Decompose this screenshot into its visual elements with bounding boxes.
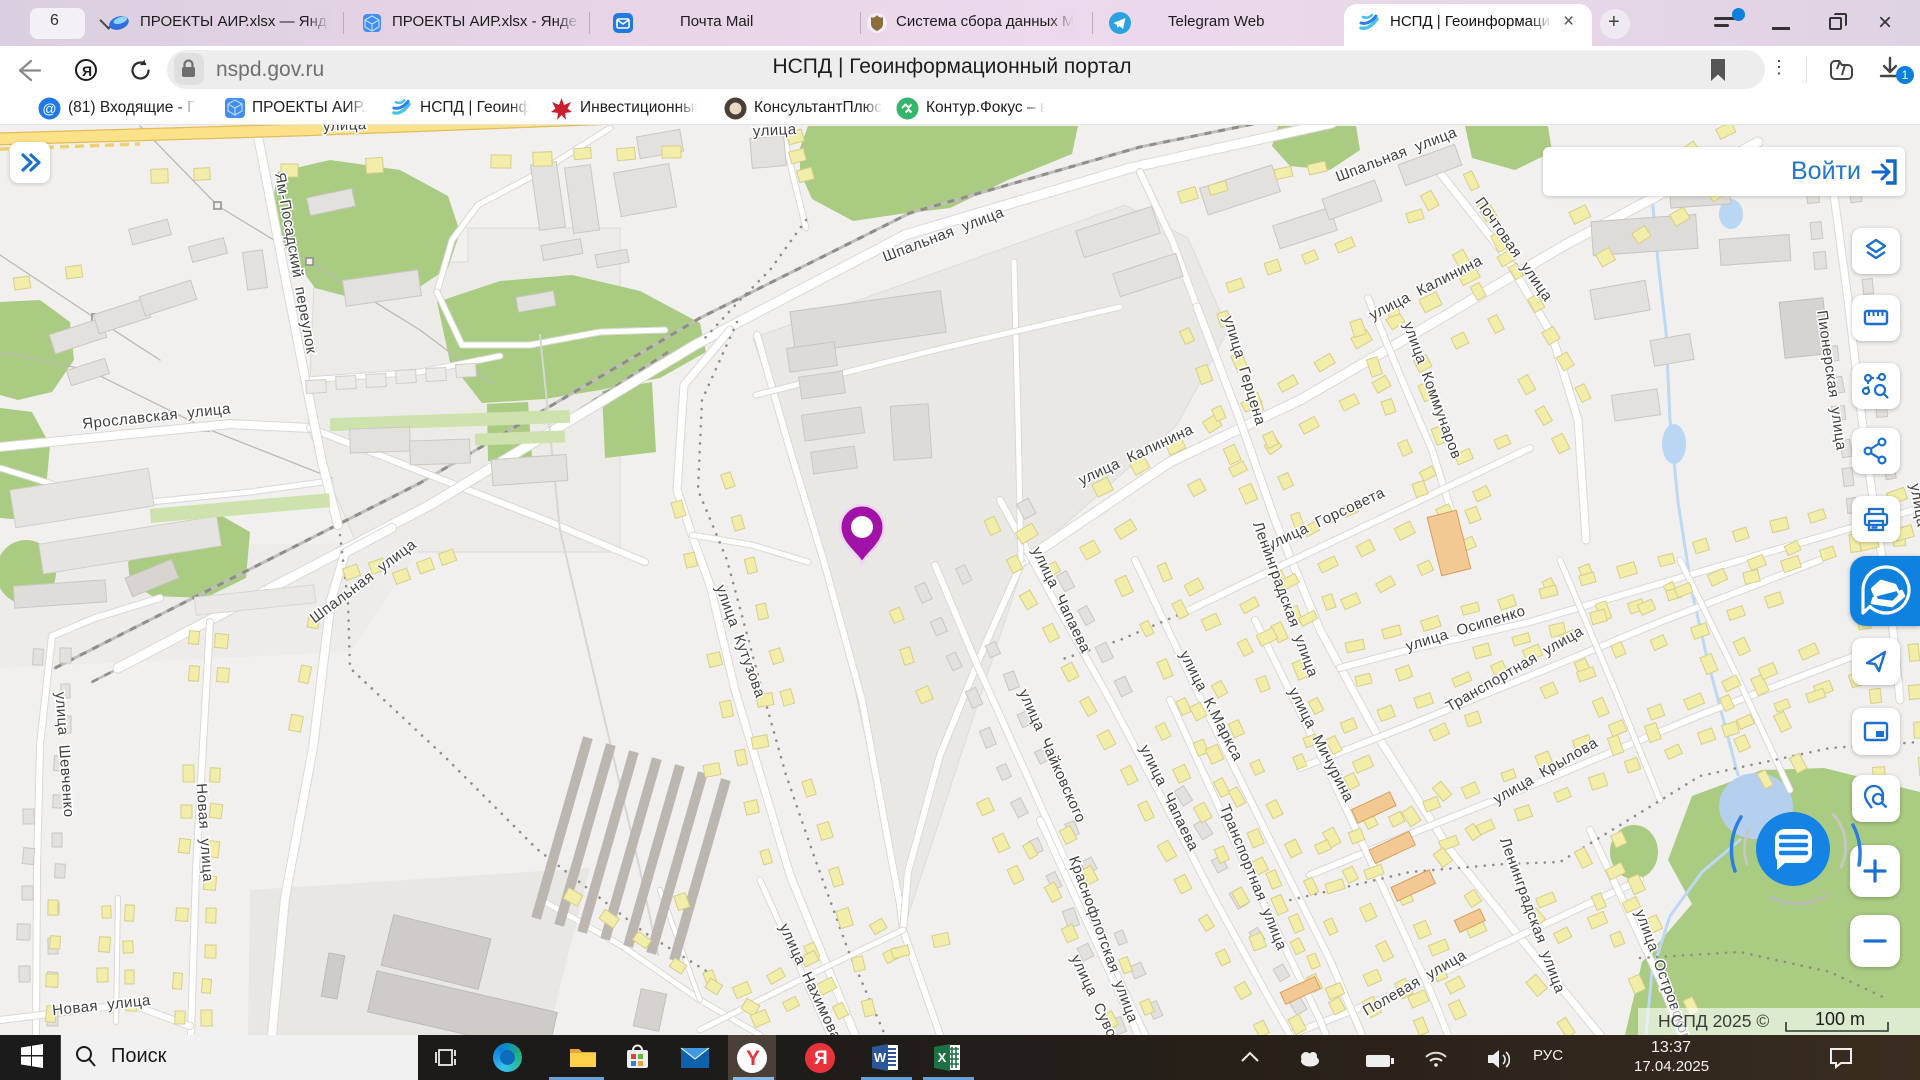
svg-text:@: @ bbox=[42, 101, 56, 117]
svg-text:X: X bbox=[938, 1050, 947, 1065]
svg-text:W: W bbox=[874, 1050, 887, 1065]
